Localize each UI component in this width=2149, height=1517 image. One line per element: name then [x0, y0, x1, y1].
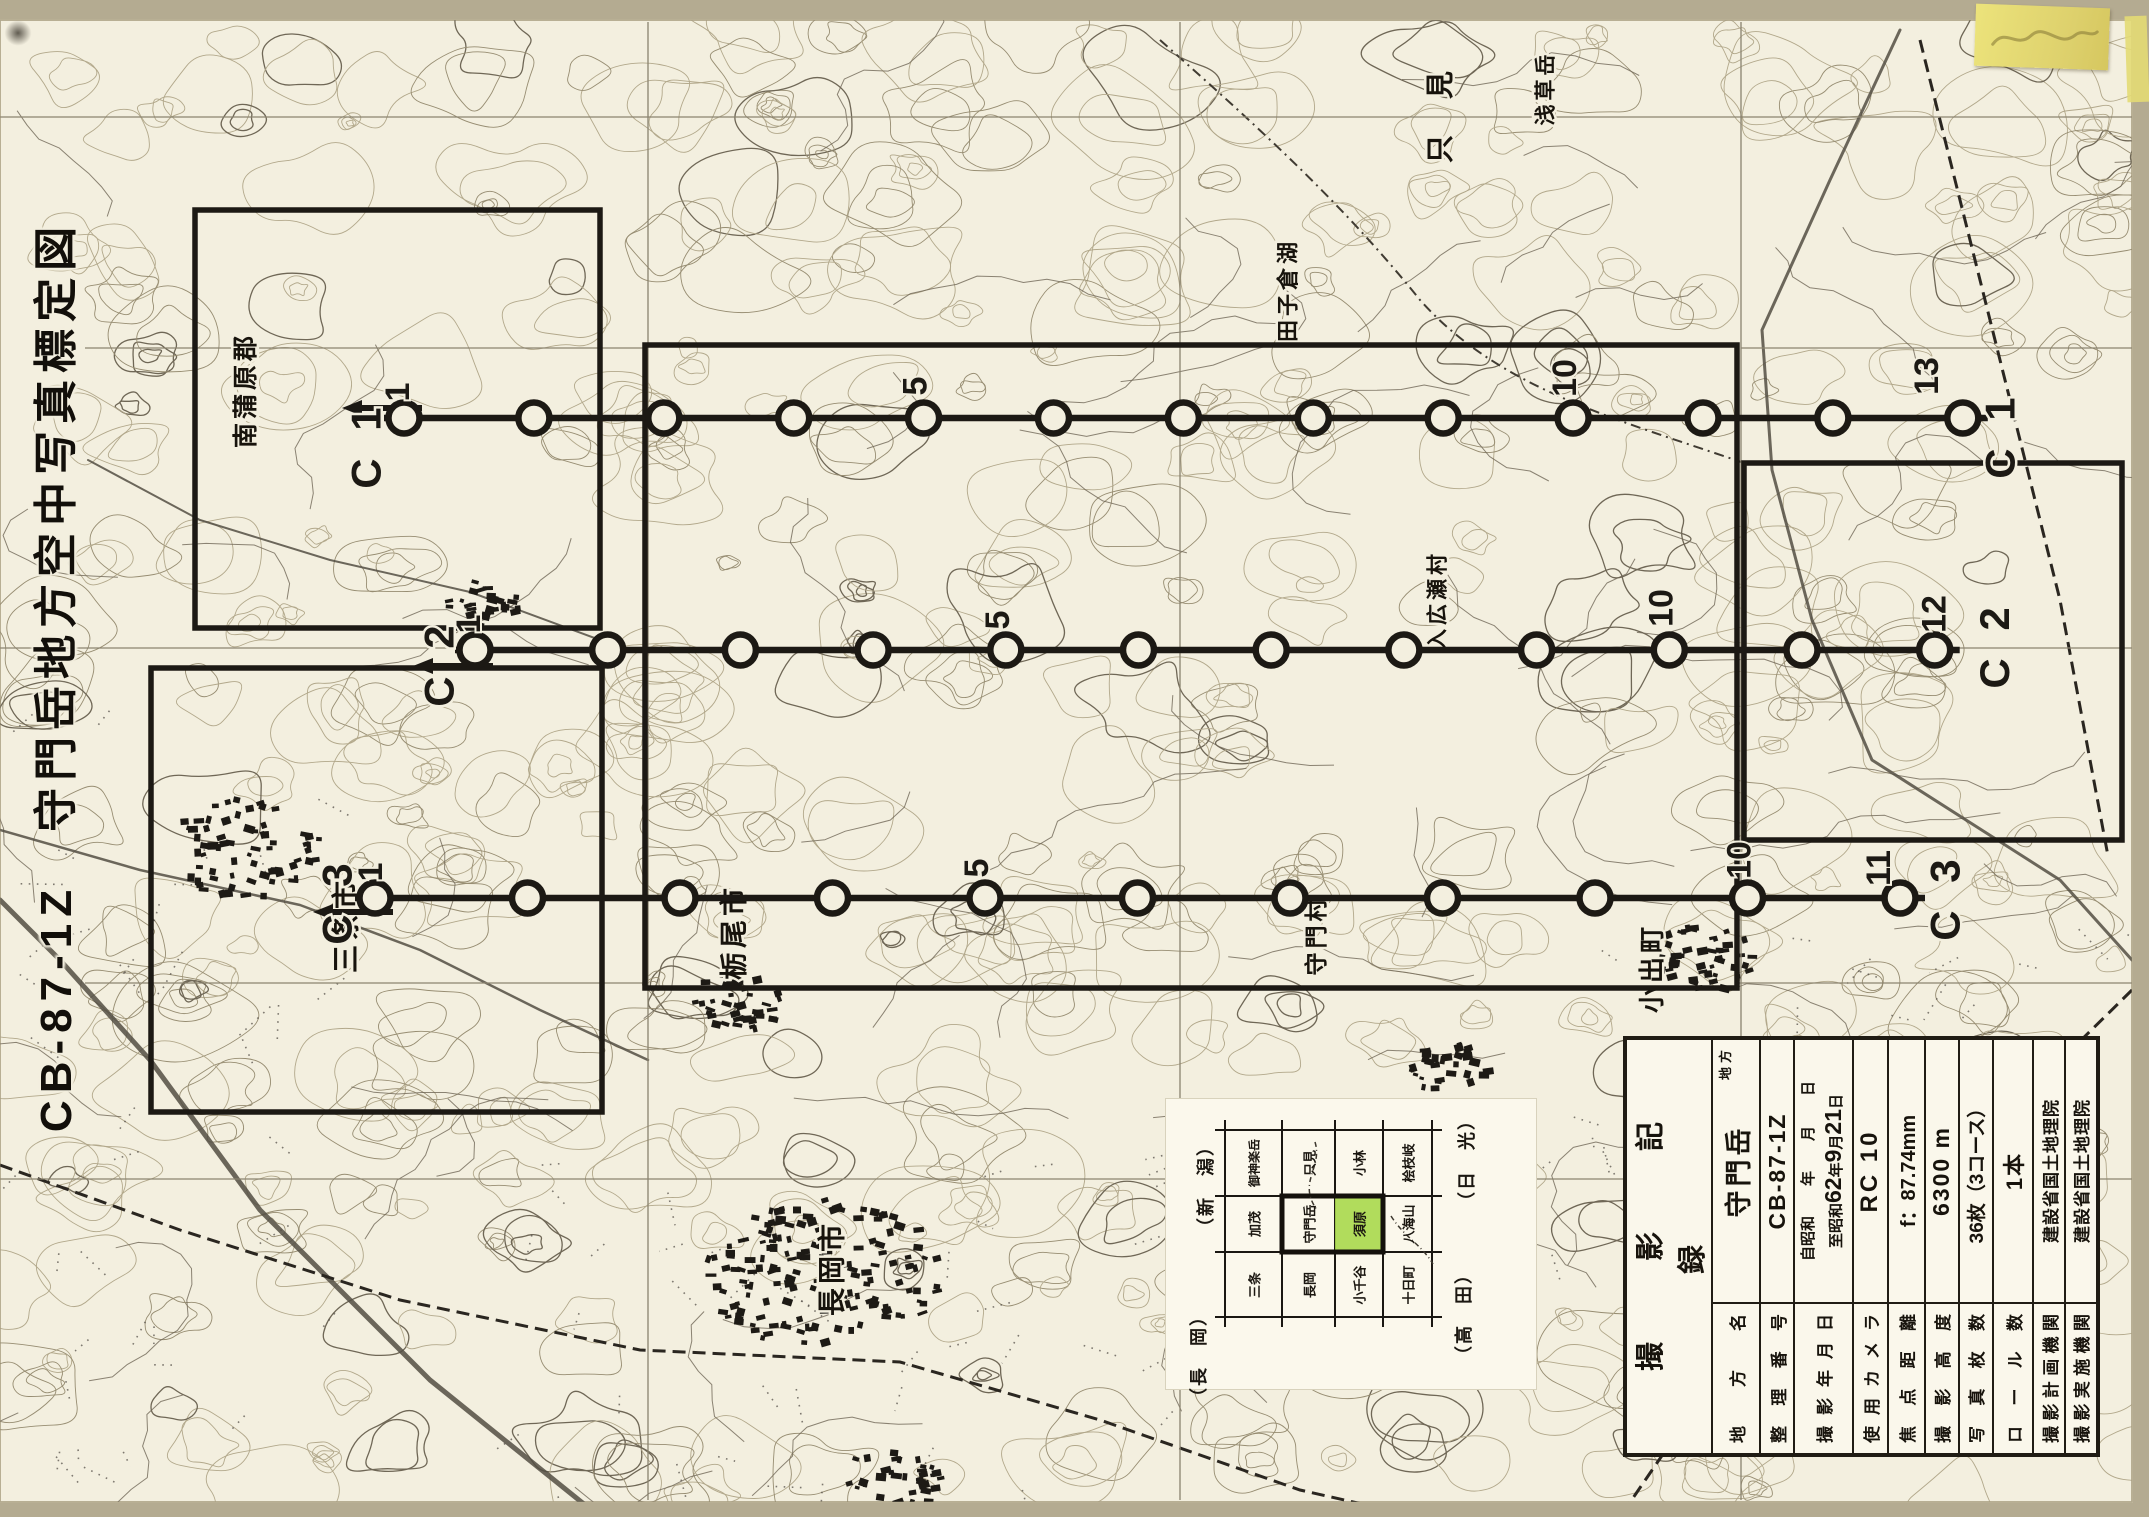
photo-centre — [1275, 883, 1306, 914]
urban-block — [713, 1283, 722, 1290]
photo-centre — [518, 403, 549, 434]
record-row-value: 建設省国土地理院 — [2065, 1038, 2098, 1303]
photo-centre — [1885, 883, 1916, 914]
urban-block — [194, 818, 205, 824]
record-table-title: 撮 影 記 録 — [1625, 1038, 1712, 1455]
photo-centre — [1427, 883, 1458, 914]
index-cell-加茂: 加茂 — [1244, 1211, 1263, 1237]
photo-centre — [460, 635, 491, 666]
urban-block — [727, 1253, 735, 1259]
urban-block — [188, 826, 198, 833]
index-cell-御神楽岳: 御神楽岳 — [1245, 1139, 1262, 1187]
record-row-value: 6300 m — [1925, 1038, 1959, 1303]
photo-centre — [665, 883, 696, 914]
urban-block — [711, 1254, 718, 1261]
urban-block — [246, 827, 250, 830]
urban-block — [266, 846, 272, 850]
urban-block — [269, 879, 276, 885]
record-row-value: 自昭和 年 月 日至昭和62年9月21日 — [1794, 1038, 1852, 1303]
corner-smudge — [0, 16, 36, 50]
urban-block — [316, 837, 322, 841]
map-label: 田子倉湖 — [1276, 238, 1301, 342]
record-row-value: 守門岳地方 — [1712, 1038, 1760, 1303]
urban-block — [769, 1323, 779, 1329]
urban-block — [187, 873, 194, 881]
photo-centre — [1038, 403, 1069, 434]
photo-number: 10 — [1642, 589, 1680, 627]
record-row-label: 撮影高度 — [1925, 1303, 1959, 1455]
urban-block — [876, 1473, 887, 1482]
photo-centre — [858, 635, 889, 666]
urban-block — [209, 868, 216, 876]
record-row-label: 写真枚数 — [1959, 1303, 1993, 1455]
record-row-value: CB-87-1Z — [1760, 1038, 1794, 1303]
urban-block — [900, 1314, 905, 1319]
urban-block — [913, 1288, 921, 1295]
photo-centre — [1947, 403, 1978, 434]
urban-block — [773, 1281, 781, 1286]
urban-block — [855, 1293, 860, 1300]
photo-centre — [1256, 635, 1287, 666]
urban-block — [1674, 953, 1684, 958]
index-cell-守門岳: 守門岳 — [1299, 1204, 1318, 1243]
photo-number: 10 — [1546, 359, 1584, 397]
photo-record-table: 撮 影 記 録地 方 名守門岳地方整理番号CB-87-1Z撮影年月日自昭和 年 … — [1623, 1036, 2100, 1457]
index-cell-八海山: 八海山 — [1398, 1204, 1417, 1243]
urban-block — [746, 1292, 751, 1298]
course-label: C 1 — [1976, 389, 2023, 478]
urban-block — [756, 1264, 763, 1272]
map-label: 南蒲原郡 — [232, 332, 260, 448]
record-row-label: ロール数 — [1993, 1303, 2033, 1455]
index-cell-桧枝岐: 桧枝岐 — [1398, 1143, 1417, 1182]
photo-number: 1 — [379, 383, 417, 402]
urban-block — [890, 1449, 899, 1456]
photo-centre — [648, 403, 679, 434]
photo-centre — [990, 635, 1021, 666]
photo-centre — [1732, 883, 1763, 914]
urban-block — [195, 878, 201, 886]
record-row-value: 建設省国土地理院 — [2033, 1038, 2065, 1303]
urban-block — [1453, 1061, 1459, 1067]
urban-block — [793, 1207, 801, 1214]
map-label: 守門村 — [1303, 895, 1329, 976]
photo-centre — [1919, 635, 1950, 666]
photo-centre — [1168, 403, 1199, 434]
urban-block — [513, 594, 519, 600]
sticky-note — [1974, 4, 2110, 71]
urban-block — [485, 611, 494, 615]
urban-block — [768, 1016, 777, 1023]
photo-centre — [1817, 403, 1848, 434]
photo-centre — [778, 403, 809, 434]
urban-block — [760, 1255, 765, 1263]
record-row-label: 撮影年月日 — [1794, 1303, 1852, 1455]
record-row-label: 使用カメラ — [1853, 1303, 1888, 1455]
urban-block — [1681, 929, 1686, 935]
urban-block — [876, 1494, 885, 1502]
urban-block — [848, 1327, 854, 1334]
record-row-label: 整理番号 — [1760, 1303, 1794, 1455]
urban-block — [805, 1324, 809, 1332]
urban-block — [751, 1327, 760, 1333]
urban-block — [1446, 1070, 1457, 1077]
urban-block — [913, 1244, 923, 1251]
photo-centre — [817, 883, 848, 914]
record-row-value: 36枚（3コース） — [1959, 1038, 1993, 1303]
index-key-map: 御神楽岳加茂三条只見守門岳長岡小林須原小千谷桧枝岐八海山十日町（新 潟）（日 光… — [1165, 1098, 1537, 1390]
photo-number: 5 — [979, 611, 1017, 630]
photo-centre — [1428, 403, 1459, 434]
record-row-label: 焦点距離 — [1888, 1303, 1925, 1455]
urban-block — [728, 993, 734, 998]
photo-centre — [1580, 883, 1611, 914]
photo-number: 5 — [897, 377, 935, 396]
photo-number: 11 — [1860, 850, 1898, 886]
index-corner-label: （長 岡） — [1185, 1306, 1211, 1406]
urban-block — [731, 1267, 741, 1272]
urban-block — [1462, 1052, 1473, 1061]
urban-block — [270, 840, 277, 845]
map-label: 只 見 — [1425, 67, 1456, 163]
urban-block — [706, 1274, 717, 1277]
urban-block — [860, 1206, 867, 1212]
course-label: C 1 — [343, 399, 390, 488]
urban-block — [199, 887, 209, 892]
index-cell-三条: 三条 — [1244, 1271, 1263, 1297]
photo-number: 10 — [1721, 841, 1759, 879]
urban-block — [1483, 1067, 1495, 1075]
urban-block — [747, 993, 753, 997]
record-row-value: f：87.74mm — [1888, 1038, 1925, 1303]
urban-block — [194, 848, 201, 856]
urban-block — [231, 857, 238, 865]
urban-block — [747, 1269, 757, 1274]
photo-centre — [1388, 635, 1419, 666]
urban-block — [864, 1454, 872, 1462]
urban-block — [745, 1257, 756, 1263]
index-cell-十日町: 十日町 — [1398, 1265, 1417, 1304]
urban-block — [180, 818, 189, 825]
photo-centre — [1654, 635, 1685, 666]
urban-block — [902, 1473, 907, 1481]
urban-block — [727, 1243, 732, 1249]
map-label: 小出町 — [1637, 923, 1667, 1013]
record-row-label: 撮影実施機関 — [2065, 1303, 2098, 1455]
photo-centre — [592, 635, 623, 666]
urban-block — [1431, 1054, 1438, 1062]
photo-centre — [1787, 635, 1818, 666]
urban-block — [766, 1245, 774, 1251]
photo-number: 1 — [352, 863, 390, 882]
photo-centre — [360, 883, 391, 914]
urban-block — [867, 1277, 874, 1284]
urban-block — [469, 603, 476, 607]
photo-record-panel: 撮 影 記 録地 方 名守門岳地方整理番号CB-87-1Z撮影年月日自昭和 年 … — [1623, 1040, 2100, 1457]
urban-block — [1669, 959, 1680, 967]
urban-block — [764, 1222, 771, 1228]
course-label: C 2 — [1971, 599, 2018, 688]
photo-number: 12 — [1916, 595, 1954, 633]
urban-block — [252, 829, 258, 833]
urban-block — [854, 1245, 864, 1250]
urban-block — [212, 803, 219, 808]
record-row-value: 1本 — [1993, 1038, 2033, 1303]
photo-centre — [1558, 403, 1589, 434]
record-row-label: 地 方 名 — [1712, 1303, 1760, 1455]
sheet-title: CB-87-1Z 守門岳地方空中写真標定図 — [20, 220, 84, 1132]
index-corner-label: （日 光） — [1453, 1110, 1479, 1210]
urban-block — [1747, 955, 1757, 959]
urban-block — [245, 805, 254, 813]
urban-block — [881, 1314, 891, 1320]
urban-block — [204, 825, 209, 831]
photo-number: 1 — [450, 615, 488, 634]
map-label: 長岡市 — [816, 1220, 848, 1316]
record-row-value: RC 10 — [1853, 1038, 1888, 1303]
urban-block — [895, 1312, 901, 1318]
urban-block — [263, 831, 269, 838]
photo-number: 5 — [958, 859, 996, 878]
urban-block — [502, 609, 508, 613]
sticky-note-edge — [2125, 16, 2149, 103]
index-corner-label: （新 潟） — [1192, 1136, 1218, 1236]
urban-block — [1722, 942, 1733, 949]
photo-centre — [1123, 635, 1154, 666]
photo-number: 13 — [1908, 357, 1946, 395]
photo-centre — [512, 883, 543, 914]
photo-centre — [1688, 403, 1719, 434]
photo-centre — [389, 403, 420, 434]
urban-block — [294, 875, 298, 882]
urban-block — [734, 1318, 744, 1325]
index-cell-小千谷: 小千谷 — [1350, 1265, 1369, 1304]
urban-block — [869, 1303, 878, 1309]
index-cell-只見: 只見 — [1299, 1150, 1318, 1176]
photo-centre — [1122, 883, 1153, 914]
photo-centre — [1298, 403, 1329, 434]
urban-block — [194, 834, 201, 842]
photo-centre — [908, 403, 939, 434]
urban-block — [446, 605, 454, 609]
index-corner-label: （高 田） — [1450, 1264, 1476, 1364]
urban-block — [196, 865, 203, 869]
urban-block — [701, 979, 711, 985]
urban-block — [699, 1000, 706, 1007]
urban-block — [1431, 1085, 1440, 1091]
urban-block — [861, 1269, 872, 1276]
urban-block — [1704, 970, 1713, 978]
index-cell-小林: 小林 — [1350, 1150, 1369, 1176]
urban-block — [801, 1340, 807, 1345]
index-grid — [1165, 1098, 1537, 1390]
course-label: C 3 — [1922, 851, 1969, 940]
record-row-label: 撮影計画機関 — [2033, 1303, 2065, 1455]
index-cell-長岡: 長岡 — [1299, 1271, 1318, 1297]
urban-block — [913, 1227, 924, 1233]
photo-centre — [970, 883, 1001, 914]
photo-centre — [1521, 635, 1552, 666]
urban-block — [260, 893, 267, 900]
sticky-note-scribble — [1974, 4, 2110, 71]
urban-block — [853, 1215, 864, 1221]
map-label: 浅草岳 — [1535, 51, 1558, 126]
urban-block — [1430, 1062, 1440, 1069]
photo-centre — [725, 635, 756, 666]
scanned-map-sheet: 只 見田子倉湖浅草岳南蒲原郡三条市栃尾市守門村入広瀬村小出町長岡市C 1C 11… — [0, 0, 2149, 1517]
index-cell-須原: 須原 — [1350, 1211, 1369, 1237]
urban-block — [771, 1267, 780, 1273]
map-label: 入広瀬村 — [1426, 550, 1450, 650]
urban-block — [743, 1015, 753, 1023]
